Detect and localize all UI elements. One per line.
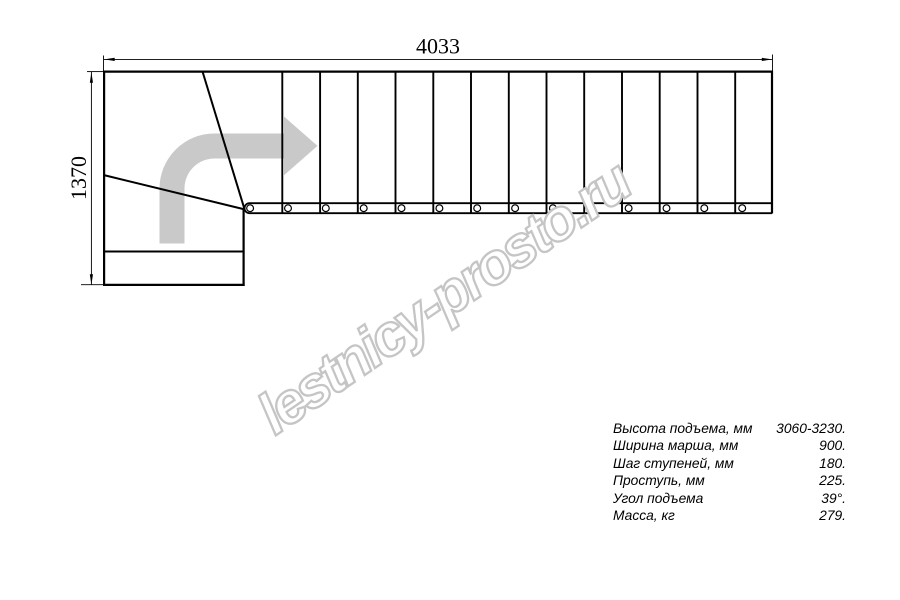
svg-text:1370: 1370 xyxy=(66,156,91,200)
svg-text:4033: 4033 xyxy=(416,34,460,59)
svg-text:lestnicy-prosto.ru: lestnicy-prosto.ru xyxy=(246,147,644,446)
